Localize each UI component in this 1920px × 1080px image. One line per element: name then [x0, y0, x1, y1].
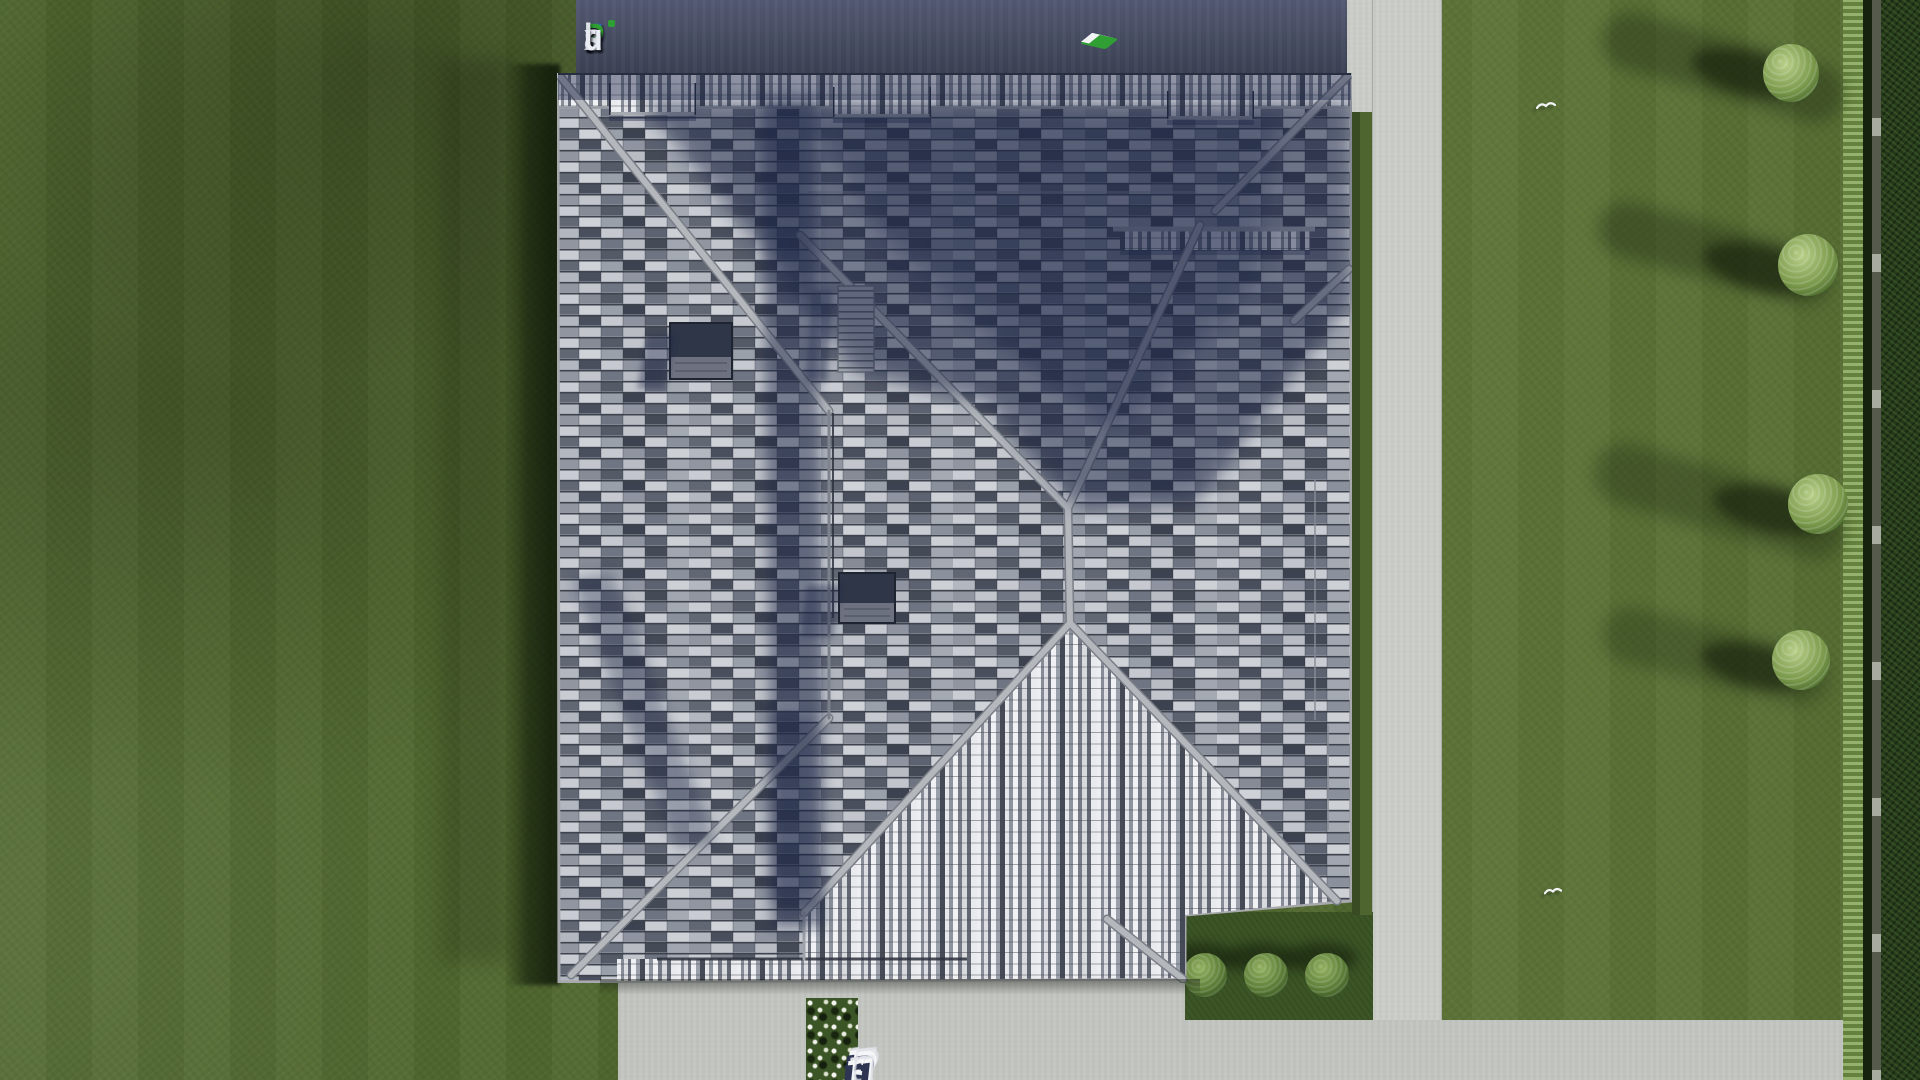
house-shadow — [506, 64, 560, 985]
skylight — [839, 573, 895, 623]
aerial-render-stage: FixPlans.ru FixPlans.ru — [0, 0, 1920, 1080]
bush — [1763, 44, 1819, 102]
fence-line — [1872, 0, 1881, 1080]
driveway-right — [1185, 1020, 1845, 1080]
house-shadow-soft — [440, 58, 512, 963]
letter: u — [839, 1042, 879, 1080]
grass-strip-east-shadow — [1352, 112, 1360, 915]
bush — [1788, 474, 1848, 534]
hedge-foliage — [1881, 0, 1920, 1080]
path-vertical — [1372, 0, 1442, 1080]
skylight — [670, 323, 732, 379]
roof-svg — [557, 73, 1352, 983]
bush — [1772, 630, 1830, 690]
hedge-shadow-gap — [1863, 0, 1872, 1080]
eave-drop-shadow — [600, 979, 1200, 995]
wall-band-top — [576, 0, 1347, 73]
letter: u — [584, 17, 601, 60]
hedge-light-strip — [1843, 0, 1863, 1080]
logo-i-dot — [608, 20, 615, 27]
roof — [557, 73, 1352, 983]
bush — [1778, 234, 1838, 296]
